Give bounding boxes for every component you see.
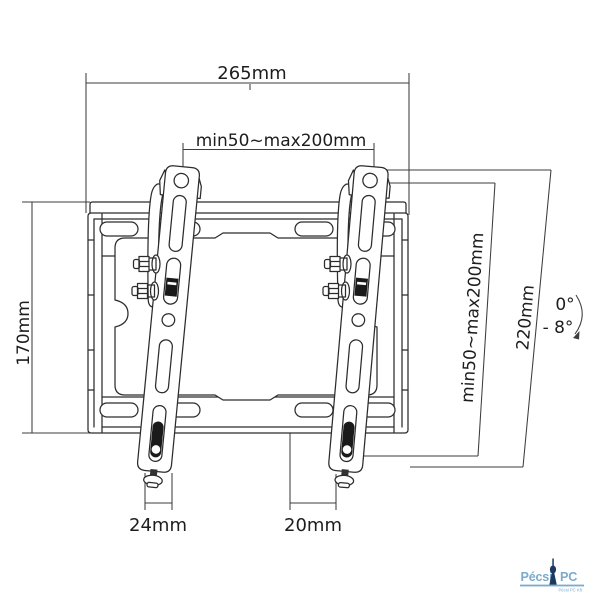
logo-underline xyxy=(520,585,584,587)
logo-text-primary: Pécsi xyxy=(521,570,553,584)
dim-vesa-height-label: min50~max200mm xyxy=(458,232,488,403)
logo: Pécsi PC Pécsi PC Kft xyxy=(520,559,584,593)
tilt-angle-annotation: 0° - 8° xyxy=(543,295,583,340)
tilt-arc xyxy=(575,295,582,334)
dim-right-bottom-label: 20mm xyxy=(284,515,342,536)
dim-top-width-label: 265mm xyxy=(217,63,286,84)
mount-diagram-svg: 265mm min50~max200mm 170mm min50~max200m… xyxy=(0,0,600,600)
dim-vesa-width-label: min50~max200mm xyxy=(196,131,367,151)
tilt-min-label: 0° xyxy=(555,295,574,315)
tv-mount-technical-drawing: 265mm min50~max200mm 170mm min50~max200m… xyxy=(0,0,600,600)
dim-left-bottom-label: 24mm xyxy=(129,515,187,536)
tilt-max-label: - 8° xyxy=(543,318,574,338)
logo-text-secondary: PC xyxy=(560,570,577,584)
dim-vesa-width: min50~max200mm xyxy=(183,131,374,167)
dim-plate-height-label: 170mm xyxy=(14,300,34,366)
logo-tagline: Pécsi PC Kft xyxy=(558,588,582,593)
